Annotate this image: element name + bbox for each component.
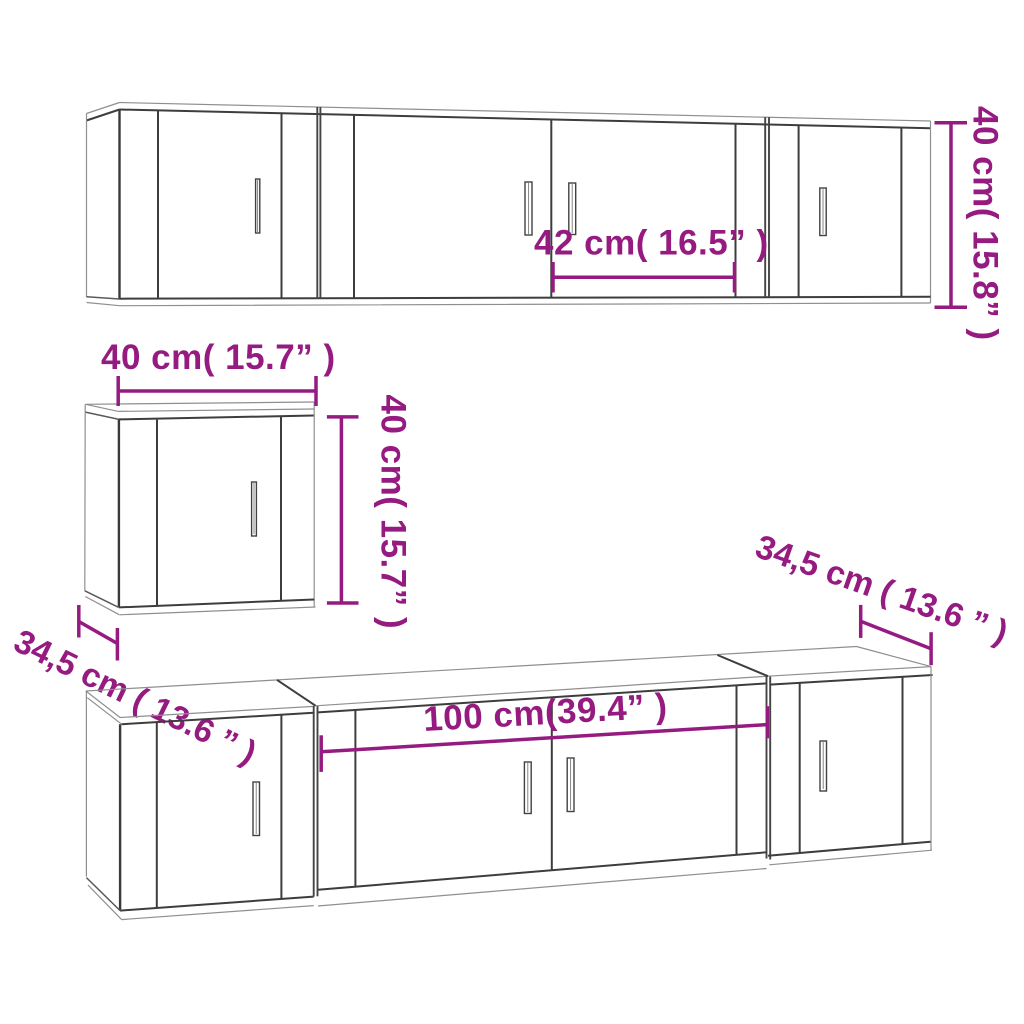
svg-text:40 cm( 15.7” ): 40 cm( 15.7” ) [101, 338, 336, 377]
svg-text:40 cm( 15.7” ): 40 cm( 15.7” ) [374, 395, 413, 630]
svg-text:42 cm( 16.5” ): 42 cm( 16.5” ) [534, 224, 769, 263]
svg-text:40 cm( 15.8” ): 40 cm( 15.8” ) [966, 106, 1005, 341]
